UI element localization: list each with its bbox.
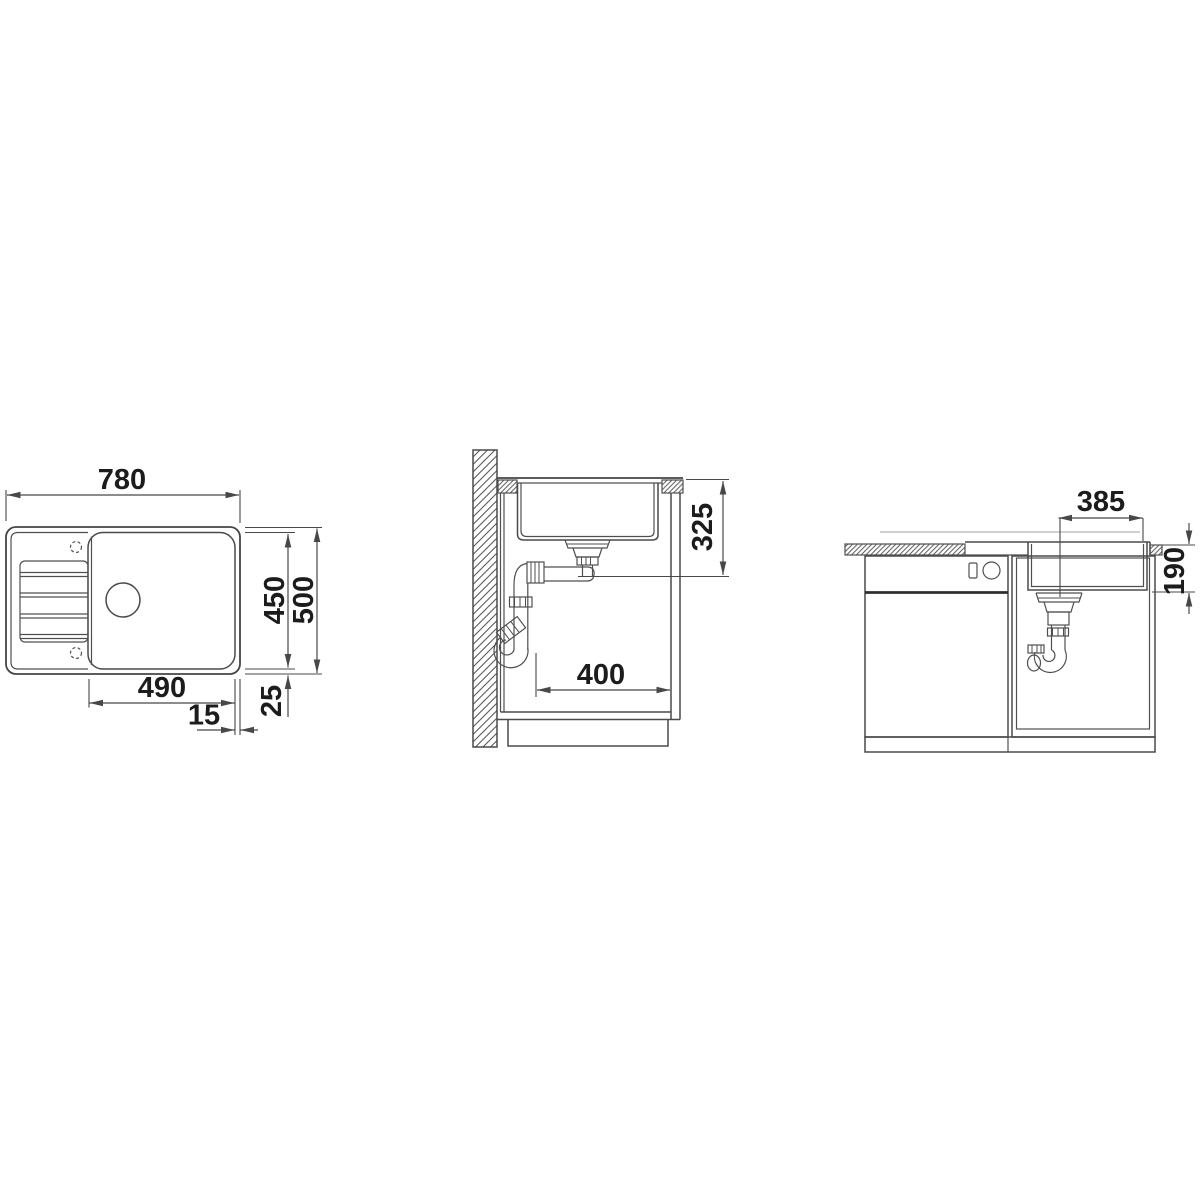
worktop-cut-right xyxy=(662,480,683,493)
dim-depths: 450 500 25 xyxy=(245,528,322,718)
dim-label-400: 400 xyxy=(577,659,625,691)
worktop-front xyxy=(845,544,965,555)
tap-hole-top xyxy=(71,542,82,553)
top-view: 780 450 500 25 490 15 xyxy=(6,464,322,735)
dim-label-15: 15 xyxy=(188,700,220,732)
dishwasher-knob xyxy=(983,562,1000,579)
cabinet-section xyxy=(497,494,680,747)
sink-outer-rim xyxy=(6,527,240,674)
tap-hole-bottom xyxy=(71,648,82,659)
dim-bowl-width: 490 15 xyxy=(89,672,258,735)
dim-overall-width: 780 xyxy=(6,464,240,523)
dim-label-490: 490 xyxy=(138,672,186,704)
section-view: 325 400 xyxy=(473,450,729,747)
technical-drawing-canvas: 780 450 500 25 490 15 xyxy=(0,0,1200,1200)
drainboard-grooves xyxy=(21,573,88,639)
bowl-front-inner xyxy=(1032,544,1144,587)
dim-bowl-height: 190 xyxy=(1152,523,1195,614)
front-view: 385 190 xyxy=(845,486,1195,752)
dim-label-385: 385 xyxy=(1077,486,1125,518)
drainboard xyxy=(20,561,88,642)
dim-label-325: 325 xyxy=(687,503,719,551)
drain-strainer-section xyxy=(565,540,610,576)
dishwasher-display xyxy=(969,563,977,578)
drain-hole xyxy=(106,583,140,617)
worktop-cut-left xyxy=(498,480,517,493)
drain-strainer-front xyxy=(1036,593,1082,650)
bowl-front-outer xyxy=(1028,542,1147,590)
dim-label-25: 25 xyxy=(256,685,288,717)
dishwasher-cabinet xyxy=(865,556,1008,737)
dim-cabinet-clearance: 400 xyxy=(536,653,670,697)
trap-section xyxy=(494,562,594,668)
dim-label-190: 190 xyxy=(1159,547,1191,595)
dim-label-780: 780 xyxy=(98,464,146,496)
bowl-section-outer xyxy=(518,483,659,540)
sink-bowl xyxy=(88,533,235,670)
dim-label-500: 500 xyxy=(288,576,320,624)
sink-base-cabinet xyxy=(1012,556,1155,737)
wall-section xyxy=(473,450,497,747)
dim-label-450: 450 xyxy=(259,576,291,624)
sink-base-cabinet-inner xyxy=(1017,558,1150,729)
trap-front xyxy=(1028,645,1067,672)
bowl-section-inner xyxy=(521,483,654,537)
dim-drain-offset: 385 xyxy=(1059,486,1144,541)
plinth xyxy=(865,737,1155,752)
